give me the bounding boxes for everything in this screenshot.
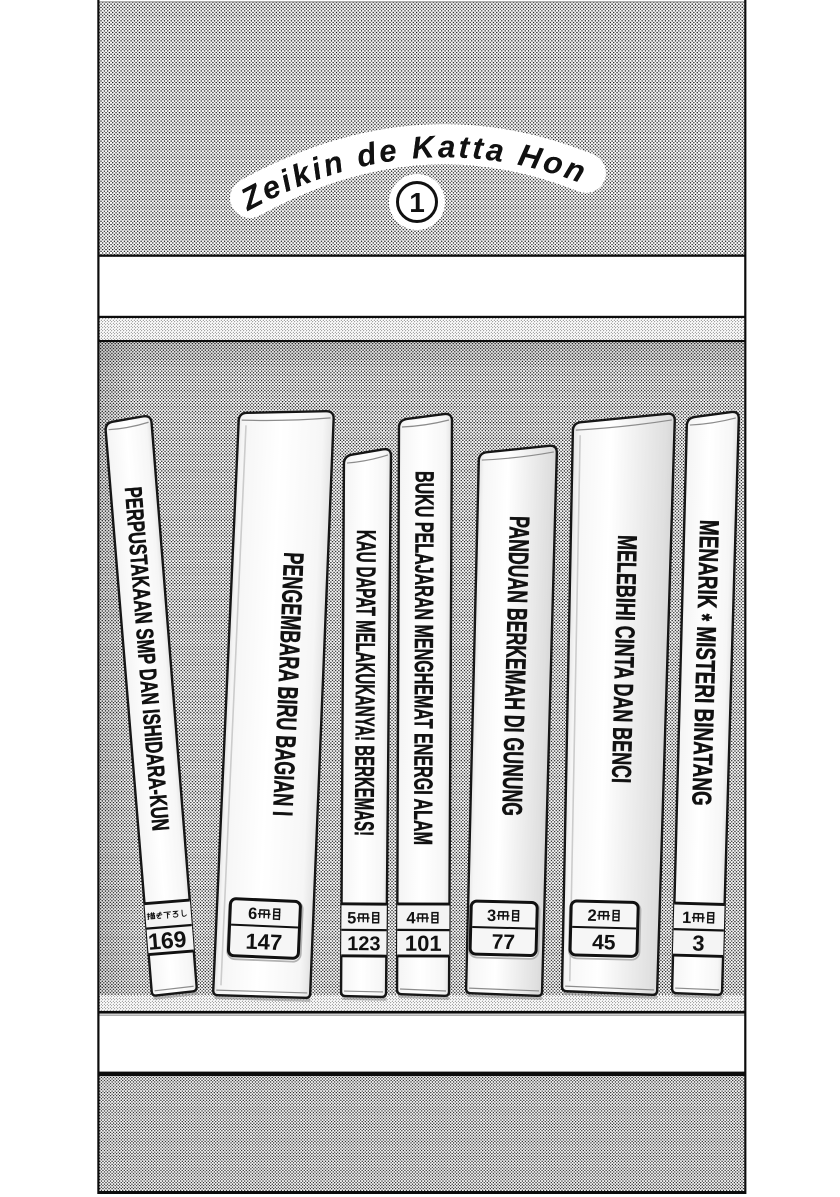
svg-text:77: 77 <box>491 931 515 955</box>
svg-text:147: 147 <box>245 929 283 956</box>
svg-text:1: 1 <box>409 187 425 218</box>
svg-text:6: 6 <box>248 905 258 923</box>
svg-text:4: 4 <box>406 909 416 927</box>
svg-text:KAU DAPAT MELAKUKANYA! BERKEMA: KAU DAPAT MELAKUKANYA! BERKEMAS! <box>349 530 381 836</box>
svg-text:2: 2 <box>587 907 597 925</box>
svg-text:MELEBIHI CINTA DAN BENCI: MELEBIHI CINTA DAN BENCI <box>606 535 642 784</box>
svg-text:3: 3 <box>487 907 497 925</box>
svg-text:1: 1 <box>682 909 692 927</box>
svg-text:101: 101 <box>405 931 442 956</box>
svg-text:3: 3 <box>692 931 705 956</box>
svg-text:5: 5 <box>347 909 356 927</box>
svg-text:BUKU PELAJARAN MENGHEMAT ENERG: BUKU PELAJARAN MENGHEMAT ENERGI ALAM <box>408 471 440 845</box>
svg-text:45: 45 <box>592 931 616 955</box>
svg-text:169: 169 <box>147 926 187 955</box>
svg-text:123: 123 <box>347 933 381 955</box>
